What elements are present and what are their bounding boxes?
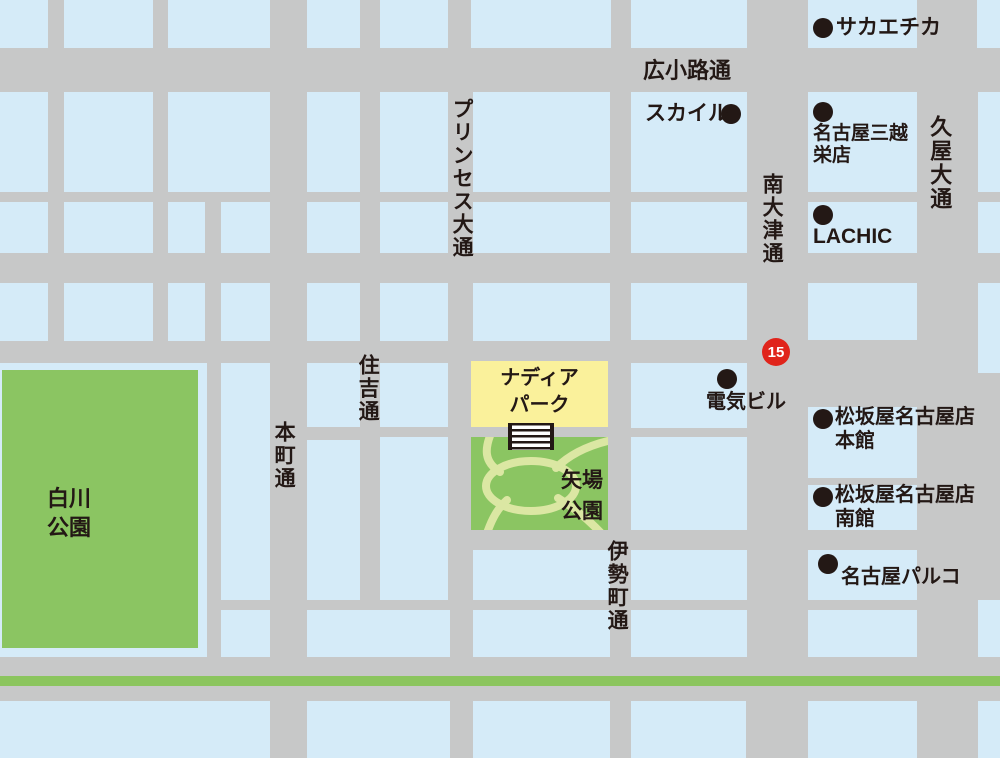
city-block — [307, 363, 360, 427]
city-block — [380, 202, 448, 253]
street-label-princess: プリンセス大通 — [449, 98, 473, 259]
city-block — [380, 363, 448, 427]
city-block — [168, 0, 270, 48]
city-block — [64, 0, 153, 48]
city-block — [473, 92, 610, 192]
city-block — [978, 92, 1000, 192]
city-block — [307, 202, 360, 253]
route-badge-number: 15 — [768, 344, 785, 361]
landmark-dot-matsuzakaya-nankan — [813, 487, 833, 507]
city-block — [380, 437, 448, 600]
stairs-crossing-icon — [508, 423, 554, 450]
city-block — [631, 202, 747, 253]
city-block — [977, 0, 1000, 48]
street-label-honmachi: 本町通 — [271, 421, 295, 490]
city-block — [471, 0, 611, 48]
park-label-yaba-park: 矢場 公園 — [561, 465, 603, 527]
city-block — [631, 610, 747, 657]
street-label-hirokoji: 広小路通 — [643, 58, 731, 83]
city-block — [168, 283, 205, 341]
city-block — [221, 363, 270, 600]
street-label-hisaya: 久屋大通 — [927, 115, 952, 211]
city-block — [221, 202, 270, 253]
city-block — [0, 701, 270, 758]
landmark-dot-lachic — [813, 205, 833, 225]
landmark-dot-mitsukoshi — [813, 102, 833, 122]
landmark-label-matsuzakaya-honkan: 松坂屋名古屋店 本館 — [835, 405, 975, 453]
city-block — [473, 550, 610, 600]
city-block — [473, 202, 610, 253]
city-block — [168, 202, 205, 253]
nagoya-sakae-area-map: 15 広小路通プリンセス大通住吉通本町通伊勢町通南大津通久屋大通サカエチカスカイ… — [0, 0, 1000, 758]
city-block — [307, 610, 450, 657]
landmark-dot-matsuzakaya-honkan — [813, 409, 833, 429]
city-block — [978, 202, 1000, 253]
city-block — [307, 440, 360, 600]
park-label-nadia-park: ナディア パーク — [471, 365, 608, 419]
landmark-label-skyle: スカイル — [645, 102, 729, 126]
city-block — [473, 283, 610, 341]
landmark-dot-sakaechika — [813, 18, 833, 38]
city-block — [808, 610, 917, 657]
city-block — [64, 92, 153, 192]
park-label-shirakawa-park: 白川 公園 — [47, 484, 91, 542]
city-block — [380, 0, 448, 48]
street-label-sumiyoshi: 住吉通 — [355, 354, 379, 423]
landmark-label-matsuzakaya-nankan: 松坂屋名古屋店 南館 — [835, 483, 975, 531]
city-block — [631, 437, 747, 530]
city-block — [64, 283, 153, 341]
city-block — [978, 283, 1000, 373]
city-block — [307, 283, 360, 341]
city-block — [631, 283, 747, 340]
street-label-minami-otsu: 南大津通 — [759, 173, 783, 265]
landmark-label-nagoya-parco: 名古屋パルコ — [841, 566, 961, 589]
median-strip — [0, 676, 1000, 686]
landmark-dot-denki-bldg — [717, 369, 737, 389]
city-block — [307, 0, 360, 48]
city-block — [0, 92, 48, 192]
landmark-label-denki-bldg: 電気ビル — [706, 391, 786, 414]
landmark-label-sakaechika: サカエチカ — [836, 16, 941, 40]
city-block — [808, 283, 917, 340]
street-label-isemachi: 伊勢町通 — [604, 540, 628, 632]
city-block — [380, 92, 448, 192]
city-block — [221, 283, 270, 341]
city-block — [64, 202, 153, 253]
route-15-badge: 15 — [762, 338, 790, 366]
city-block — [380, 283, 448, 341]
city-block — [307, 92, 360, 192]
city-block — [473, 610, 610, 657]
city-block — [221, 610, 270, 657]
landmark-label-lachic: LACHIC — [813, 225, 892, 249]
shirakawa-park-area — [2, 370, 198, 648]
city-block — [0, 0, 48, 48]
city-block — [0, 202, 48, 253]
city-block — [978, 600, 1000, 657]
city-block — [473, 701, 610, 758]
city-block — [307, 701, 450, 758]
city-block — [808, 701, 917, 758]
city-block — [168, 92, 270, 192]
city-block — [631, 550, 747, 600]
city-block — [631, 0, 747, 48]
landmark-dot-nagoya-parco — [818, 554, 838, 574]
city-block — [978, 701, 1000, 758]
city-block — [631, 701, 746, 758]
city-block — [0, 283, 48, 341]
landmark-label-mitsukoshi: 名古屋三越 栄店 — [813, 123, 908, 167]
